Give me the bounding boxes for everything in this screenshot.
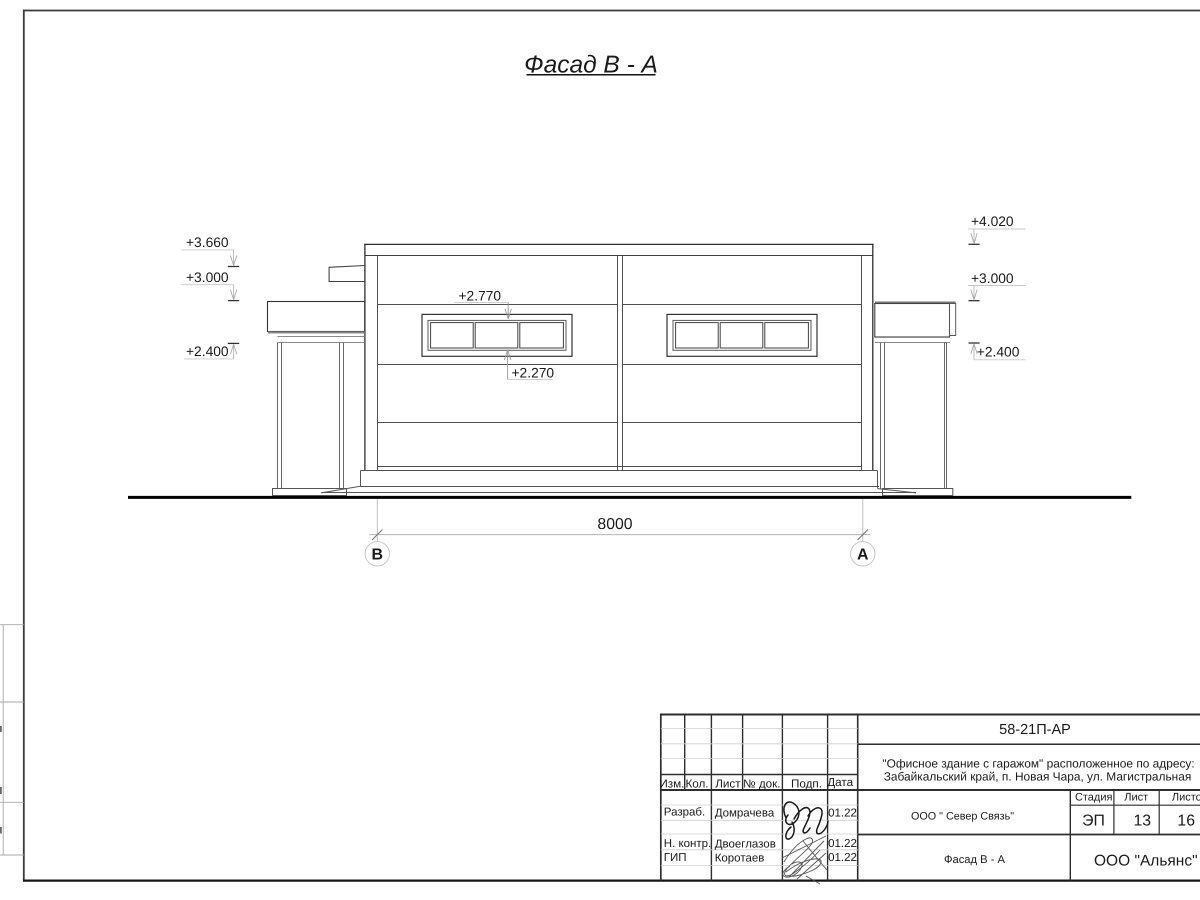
svg-text:Разраб.: Разраб. <box>664 807 705 819</box>
svg-text:А: А <box>857 546 869 563</box>
svg-text:В: В <box>372 546 384 563</box>
svg-text:Домрачева: Домрачева <box>715 808 775 820</box>
svg-text:№ док.: № док. <box>743 777 780 790</box>
svg-text:Подп.: Подп. <box>791 777 822 790</box>
svg-text:01.22: 01.22 <box>828 852 857 864</box>
svg-text:13: 13 <box>1134 813 1152 830</box>
svg-text:Стадия: Стадия <box>1075 791 1113 803</box>
svg-text:Изм.: Изм. <box>659 777 684 790</box>
svg-text:ГИП: ГИП <box>664 852 687 864</box>
svg-text:58-21П-АР: 58-21П-АР <box>999 722 1071 738</box>
svg-text:ООО "Альянс": ООО "Альянс" <box>1094 852 1198 869</box>
svg-text:+3.660: +3.660 <box>186 235 229 250</box>
svg-text:+2.400: +2.400 <box>977 345 1020 360</box>
svg-text:Забайкальский край, п. Новая Ч: Забайкальский край, п. Новая Чара, ул. М… <box>884 769 1192 783</box>
svg-text:Дата: Дата <box>827 776 853 789</box>
svg-text:01.22: 01.22 <box>828 807 857 819</box>
svg-text:Двоеглазов: Двоеглазов <box>715 839 776 851</box>
svg-text:+2.400: +2.400 <box>186 344 229 359</box>
svg-text:Листов: Листов <box>1172 791 1200 803</box>
svg-text:Лист: Лист <box>715 777 741 790</box>
svg-text:+3.000: +3.000 <box>186 270 229 285</box>
svg-text:16: 16 <box>1177 813 1195 830</box>
svg-text:01.22: 01.22 <box>828 838 857 850</box>
svg-text:Н. контр.: Н. контр. <box>664 838 711 850</box>
svg-text:Лист: Лист <box>1124 791 1148 803</box>
svg-text:ООО " Север Связь": ООО " Север Связь" <box>911 811 1014 823</box>
svg-text:8000: 8000 <box>597 516 632 533</box>
svg-text:+3.000: +3.000 <box>971 271 1014 286</box>
svg-text:Кол.: Кол. <box>685 777 708 790</box>
svg-text:+2.770: +2.770 <box>459 288 502 303</box>
svg-text:ЭП: ЭП <box>1082 813 1105 830</box>
svg-text:+2.270: +2.270 <box>512 365 555 380</box>
svg-text:+4.020: +4.020 <box>971 214 1014 229</box>
svg-text:Коротаев: Коротаев <box>715 852 765 864</box>
svg-text:Фасад В - А: Фасад В - А <box>944 854 1006 866</box>
